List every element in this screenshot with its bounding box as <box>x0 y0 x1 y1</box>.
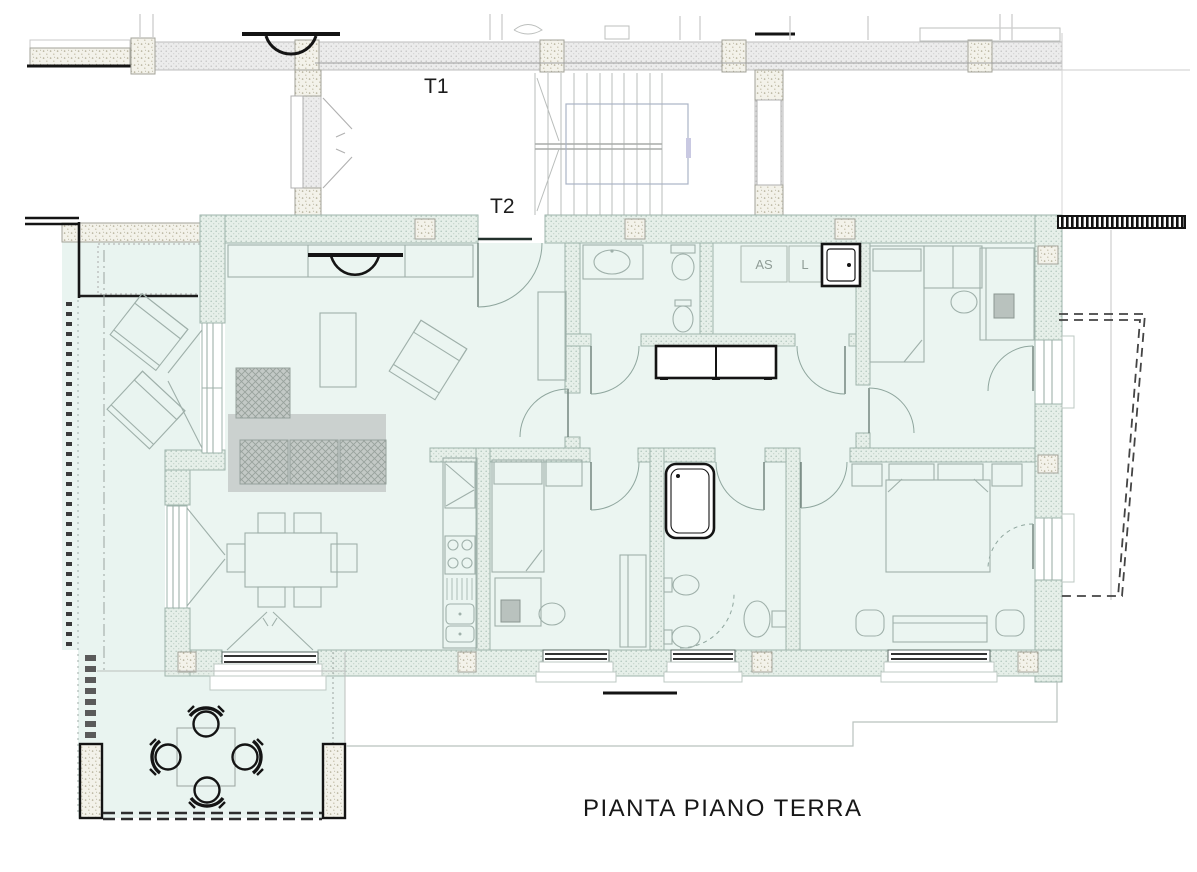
partition-bath1-south <box>641 334 795 346</box>
steps <box>667 662 739 672</box>
landing-double-door <box>323 98 352 188</box>
corridor-wall <box>850 448 1035 462</box>
sofa-cushion <box>340 440 386 484</box>
north-wall-left <box>200 215 478 243</box>
upper-column <box>295 70 321 96</box>
washer-label: L <box>801 257 808 272</box>
column <box>835 219 855 239</box>
column <box>178 652 196 672</box>
west-wall-living <box>200 215 225 323</box>
steps <box>664 672 742 682</box>
computer <box>994 294 1014 318</box>
upper-plant-icon <box>514 25 542 35</box>
stair-landing-line <box>535 144 662 149</box>
partition-living-bath1 <box>565 243 580 393</box>
staircase <box>535 73 691 215</box>
upper-column <box>540 40 564 72</box>
east-sill <box>1062 514 1074 582</box>
sofa-cushion <box>290 440 338 484</box>
column <box>625 219 645 239</box>
retaining-wall-strip <box>1058 216 1185 228</box>
drawing-title: PIANTA PIANO TERRA <box>583 795 863 822</box>
column <box>752 652 772 672</box>
upper-column <box>722 40 746 72</box>
bedroom2-window <box>543 650 609 662</box>
steps <box>214 664 322 676</box>
upper-column <box>755 70 783 100</box>
hall-wardrobe <box>656 346 776 379</box>
column <box>1038 246 1058 264</box>
sofa-cushion <box>240 440 288 484</box>
west-wall-dining-upper <box>165 470 190 505</box>
computer <box>501 600 520 622</box>
bedroom1-east-door <box>1035 340 1062 404</box>
dining-west-door <box>167 506 187 608</box>
boundary-double-line <box>25 218 79 224</box>
ground-terrace-outline <box>346 682 1057 746</box>
upper-wall-insulation <box>30 48 130 66</box>
partition-laundry-bedroom1 <box>856 433 870 448</box>
south-wall <box>609 650 671 676</box>
terrace-roof-band <box>62 223 200 242</box>
drain <box>459 613 462 616</box>
steps <box>536 672 616 682</box>
upper-column <box>755 185 783 215</box>
upper-column <box>295 188 321 215</box>
upper-wall-ticks <box>140 14 1012 40</box>
sofa-cushion <box>236 368 290 418</box>
tub-drain <box>676 474 680 478</box>
steps <box>881 672 997 682</box>
column <box>458 652 476 672</box>
upper-outline-corner <box>1062 33 1190 70</box>
steps <box>210 676 326 690</box>
steps <box>539 662 613 672</box>
pillar <box>80 744 102 818</box>
pillar <box>323 744 345 818</box>
upper-sink-outline <box>605 26 629 39</box>
upper-floor-plan <box>27 14 1190 215</box>
bath2-window <box>671 650 735 662</box>
column <box>1018 652 1038 672</box>
east-sill <box>1062 336 1074 408</box>
partition-bath1-south <box>566 334 591 346</box>
drain <box>459 633 462 636</box>
partition-bath2-master <box>786 448 800 650</box>
shower-drain <box>847 263 851 267</box>
upper-column <box>131 38 155 74</box>
upper-counter-outline <box>920 28 1060 41</box>
floor-plan-drawing: AS L <box>0 0 1197 872</box>
partition-bath1-laundry <box>700 243 713 334</box>
north-wall-right <box>545 215 1040 243</box>
faucet <box>610 249 613 252</box>
column <box>415 219 435 239</box>
steps <box>884 662 994 672</box>
partition-kitchen-bedroom2 <box>476 448 490 650</box>
label-t2: T2 <box>490 195 515 218</box>
upper-window-gap <box>757 100 781 185</box>
east-wall-upper <box>1035 215 1062 340</box>
master-window <box>888 650 990 662</box>
upper-column <box>968 40 992 72</box>
stair-annotation-mark <box>686 138 691 158</box>
partition-bedroom2-bath2 <box>650 448 664 650</box>
column <box>1038 455 1058 473</box>
label-t1: T1 <box>424 75 449 98</box>
dryer-label: AS <box>755 257 773 272</box>
upper-column <box>295 40 319 72</box>
south-wall <box>318 650 543 676</box>
master-east-door <box>1035 518 1062 580</box>
bathtub <box>666 464 714 538</box>
floor-plan-page: AS L <box>0 0 1197 872</box>
landing-door-frame <box>291 96 303 188</box>
upper-wall-strip <box>30 40 130 48</box>
